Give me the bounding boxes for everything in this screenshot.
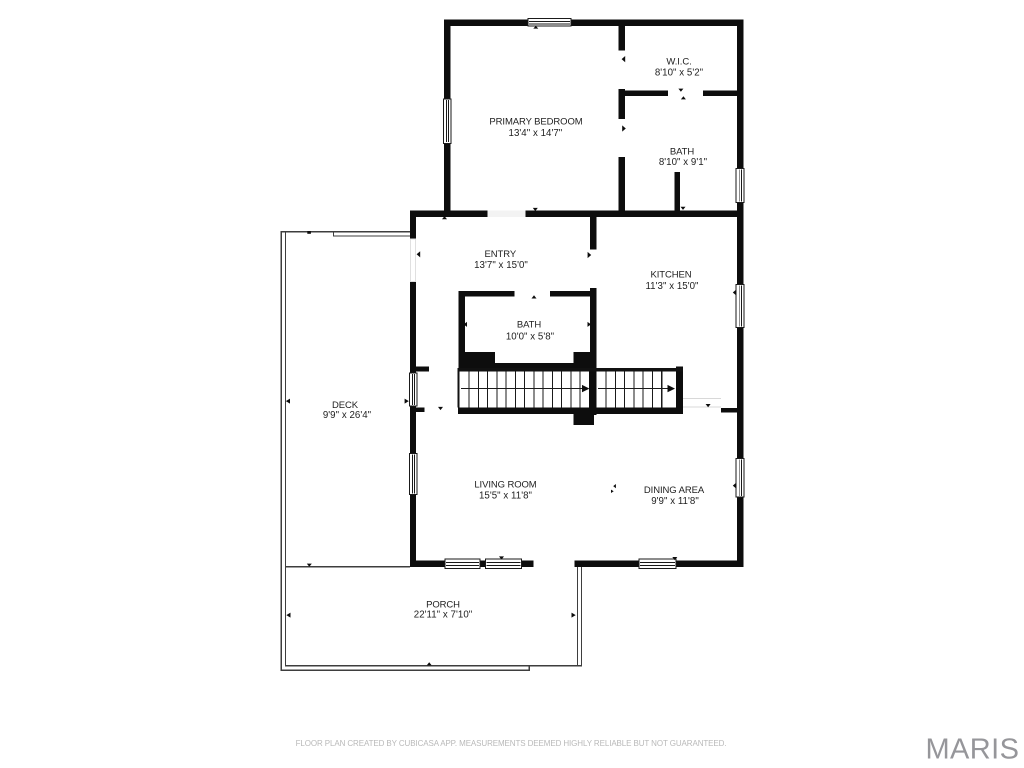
svg-text:22'11" x 7'10": 22'11" x 7'10"	[414, 609, 473, 620]
svg-text:9'9" x 26'4": 9'9" x 26'4"	[323, 410, 372, 421]
svg-text:DINING AREA: DINING AREA	[644, 485, 705, 496]
svg-text:10'0" x 5'8": 10'0" x 5'8"	[506, 331, 555, 342]
svg-text:MARIS: MARIS	[926, 734, 1020, 766]
svg-text:11'3" x 15'0": 11'3" x 15'0"	[645, 281, 699, 292]
svg-text:KITCHEN: KITCHEN	[651, 269, 692, 280]
svg-text:LIVING ROOM: LIVING ROOM	[474, 479, 536, 490]
svg-text:9'9" x 11'8": 9'9" x 11'8"	[651, 496, 699, 507]
svg-text:BATH: BATH	[517, 320, 541, 331]
svg-text:BATH: BATH	[670, 146, 694, 157]
svg-text:FLOOR PLAN CREATED BY CUBICASA: FLOOR PLAN CREATED BY CUBICASA APP. MEAS…	[296, 739, 727, 748]
svg-text:13'7" x 15'0": 13'7" x 15'0"	[474, 260, 528, 271]
svg-text:8'10" x 5'2": 8'10" x 5'2"	[655, 67, 704, 78]
svg-text:13'4" x 14'7": 13'4" x 14'7"	[509, 128, 563, 139]
svg-text:ENTRY: ENTRY	[485, 249, 517, 260]
svg-text:W.I.C.: W.I.C.	[666, 57, 691, 68]
svg-text:15'5" x 11'8": 15'5" x 11'8"	[479, 490, 533, 501]
svg-text:PRIMARY BEDROOM: PRIMARY BEDROOM	[489, 116, 582, 127]
svg-text:8'10" x 9'1": 8'10" x 9'1"	[659, 157, 708, 168]
